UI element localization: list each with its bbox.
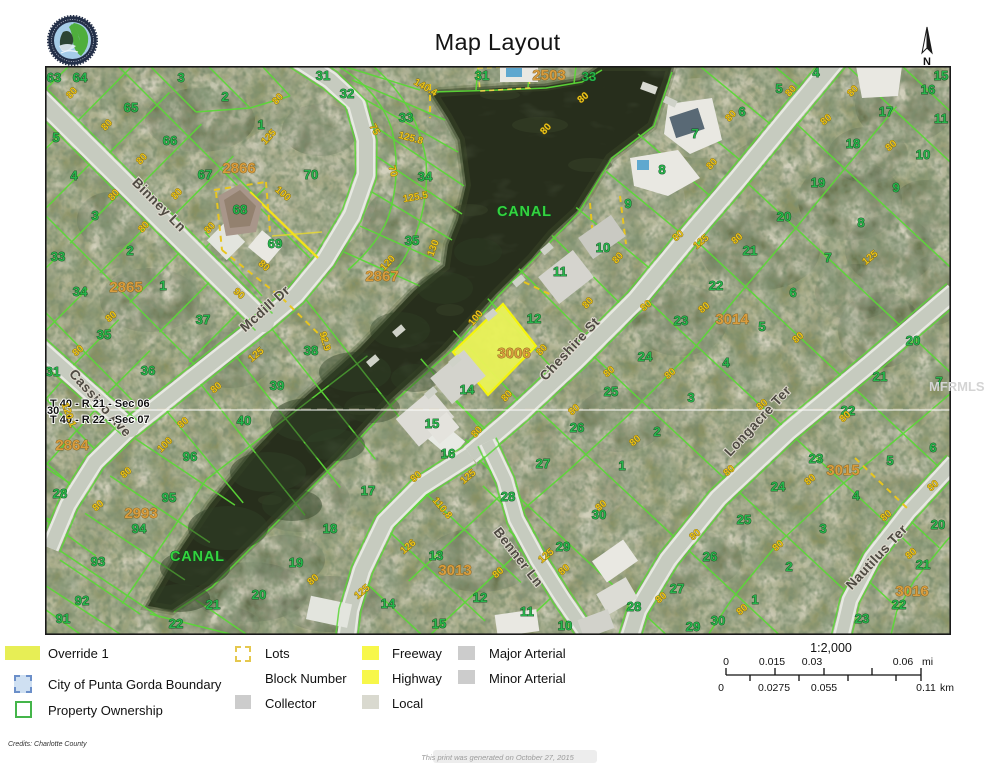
svg-text:10: 10 bbox=[558, 618, 573, 633]
svg-text:31: 31 bbox=[46, 364, 61, 379]
svg-text:29: 29 bbox=[556, 539, 571, 554]
svg-text:94: 94 bbox=[132, 521, 147, 536]
svg-text:0.0275: 0.0275 bbox=[758, 682, 790, 694]
svg-text:3: 3 bbox=[177, 70, 184, 85]
svg-text:2864: 2864 bbox=[55, 437, 89, 454]
svg-text:70: 70 bbox=[304, 167, 319, 182]
svg-text:23: 23 bbox=[809, 451, 824, 466]
svg-text:2: 2 bbox=[653, 424, 660, 439]
svg-text:2866: 2866 bbox=[222, 160, 255, 177]
svg-text:29: 29 bbox=[686, 619, 701, 634]
svg-text:3016: 3016 bbox=[895, 583, 928, 600]
svg-text:67: 67 bbox=[198, 167, 213, 182]
svg-text:1: 1 bbox=[257, 117, 264, 132]
svg-text:2: 2 bbox=[126, 243, 133, 258]
svg-text:37: 37 bbox=[196, 312, 211, 327]
svg-text:65: 65 bbox=[124, 100, 139, 115]
svg-text:9: 9 bbox=[892, 180, 899, 195]
svg-text:14: 14 bbox=[381, 596, 396, 611]
svg-text:31: 31 bbox=[316, 68, 331, 83]
svg-text:15: 15 bbox=[425, 416, 440, 431]
svg-text:1: 1 bbox=[159, 278, 166, 293]
svg-text:96: 96 bbox=[183, 449, 198, 464]
svg-text:4: 4 bbox=[812, 66, 820, 80]
svg-text:24: 24 bbox=[771, 479, 786, 494]
svg-text:69: 69 bbox=[268, 236, 283, 251]
svg-text:93: 93 bbox=[91, 554, 106, 569]
svg-text:15: 15 bbox=[432, 616, 447, 631]
svg-text:39: 39 bbox=[270, 378, 285, 393]
svg-text:25: 25 bbox=[604, 384, 619, 399]
svg-text:30: 30 bbox=[47, 405, 59, 417]
svg-text:28: 28 bbox=[53, 486, 68, 501]
svg-text:CANAL: CANAL bbox=[170, 549, 225, 565]
svg-text:3014: 3014 bbox=[715, 311, 749, 328]
svg-text:19: 19 bbox=[811, 175, 826, 190]
svg-text:0: 0 bbox=[718, 682, 724, 694]
svg-text:10: 10 bbox=[916, 147, 931, 162]
svg-text:31: 31 bbox=[475, 68, 490, 83]
svg-text:21: 21 bbox=[206, 597, 221, 612]
svg-text:8: 8 bbox=[658, 162, 665, 177]
svg-text:0.06: 0.06 bbox=[893, 656, 914, 668]
svg-text:20: 20 bbox=[252, 587, 267, 602]
svg-text:26: 26 bbox=[570, 420, 585, 435]
svg-text:17: 17 bbox=[361, 483, 376, 498]
svg-text:22: 22 bbox=[169, 616, 184, 631]
svg-text:64: 64 bbox=[73, 70, 88, 85]
svg-text:mi: mi bbox=[922, 656, 933, 668]
svg-text:4: 4 bbox=[722, 355, 730, 370]
svg-text:20: 20 bbox=[906, 333, 921, 348]
svg-text:2865: 2865 bbox=[109, 279, 142, 296]
svg-text:0.03: 0.03 bbox=[802, 656, 823, 668]
svg-text:25: 25 bbox=[737, 512, 752, 527]
svg-text:33: 33 bbox=[582, 69, 597, 84]
svg-text:27: 27 bbox=[670, 581, 685, 596]
svg-text:11: 11 bbox=[553, 264, 567, 279]
svg-text:3013: 3013 bbox=[438, 562, 471, 579]
svg-text:12: 12 bbox=[527, 311, 542, 326]
svg-text:21: 21 bbox=[743, 243, 758, 258]
svg-text:11: 11 bbox=[934, 111, 948, 126]
svg-text:3: 3 bbox=[819, 521, 826, 536]
svg-text:11: 11 bbox=[520, 604, 534, 619]
svg-text:7: 7 bbox=[691, 126, 698, 141]
svg-text:4: 4 bbox=[852, 488, 860, 503]
svg-text:38: 38 bbox=[304, 343, 319, 358]
svg-text:1: 1 bbox=[618, 458, 625, 473]
svg-text:66: 66 bbox=[163, 133, 178, 148]
svg-text:10: 10 bbox=[596, 240, 611, 255]
svg-text:35: 35 bbox=[405, 233, 420, 248]
svg-text:23: 23 bbox=[855, 611, 870, 626]
svg-text:18: 18 bbox=[846, 136, 861, 151]
svg-text:95: 95 bbox=[162, 490, 177, 505]
svg-text:35: 35 bbox=[97, 327, 112, 342]
svg-text:19: 19 bbox=[289, 555, 304, 570]
svg-text:32: 32 bbox=[340, 86, 355, 101]
svg-text:5: 5 bbox=[886, 453, 893, 468]
svg-text:20: 20 bbox=[931, 517, 946, 532]
svg-text:2867: 2867 bbox=[365, 268, 398, 285]
svg-text:14: 14 bbox=[460, 382, 475, 397]
svg-text:1:2,000: 1:2,000 bbox=[810, 641, 852, 655]
svg-text:3: 3 bbox=[91, 208, 98, 223]
svg-text:3006: 3006 bbox=[497, 345, 530, 362]
svg-text:40: 40 bbox=[237, 413, 252, 428]
svg-text:16: 16 bbox=[441, 446, 456, 461]
svg-text:13: 13 bbox=[429, 548, 444, 563]
svg-text:22: 22 bbox=[709, 278, 724, 293]
svg-text:28: 28 bbox=[627, 599, 642, 614]
svg-text:68: 68 bbox=[233, 202, 248, 217]
svg-text:0.055: 0.055 bbox=[811, 682, 837, 694]
svg-text:1: 1 bbox=[751, 592, 758, 607]
svg-text:16: 16 bbox=[921, 82, 936, 97]
svg-text:24: 24 bbox=[638, 349, 653, 364]
svg-text:91: 91 bbox=[56, 611, 71, 626]
svg-text:3: 3 bbox=[687, 390, 694, 405]
svg-text:7: 7 bbox=[824, 250, 831, 265]
svg-text:63: 63 bbox=[47, 70, 62, 85]
svg-text:20: 20 bbox=[777, 209, 792, 224]
svg-text:2993: 2993 bbox=[124, 505, 157, 522]
svg-text:km: km bbox=[940, 682, 954, 694]
svg-text:21: 21 bbox=[873, 369, 888, 384]
svg-text:21: 21 bbox=[916, 557, 931, 572]
svg-text:CANAL: CANAL bbox=[497, 204, 552, 220]
svg-text:6: 6 bbox=[929, 440, 936, 455]
svg-text:5: 5 bbox=[758, 319, 765, 334]
svg-text:34: 34 bbox=[418, 169, 433, 184]
svg-text:0.015: 0.015 bbox=[759, 656, 785, 668]
svg-text:5: 5 bbox=[52, 130, 59, 145]
svg-text:8: 8 bbox=[857, 215, 864, 230]
svg-text:0.11: 0.11 bbox=[916, 682, 936, 694]
svg-text:23: 23 bbox=[674, 313, 689, 328]
svg-text:3015: 3015 bbox=[826, 462, 859, 479]
svg-text:5: 5 bbox=[775, 81, 782, 96]
svg-text:9: 9 bbox=[624, 196, 631, 211]
svg-text:27: 27 bbox=[536, 456, 551, 471]
svg-text:15: 15 bbox=[934, 68, 949, 83]
svg-text:4: 4 bbox=[70, 168, 78, 183]
svg-text:6: 6 bbox=[789, 285, 796, 300]
svg-text:33: 33 bbox=[399, 110, 414, 125]
svg-text:2503: 2503 bbox=[532, 67, 565, 84]
svg-text:6: 6 bbox=[738, 104, 745, 119]
svg-text:0: 0 bbox=[723, 656, 729, 668]
svg-text:36: 36 bbox=[141, 363, 156, 378]
svg-text:2: 2 bbox=[221, 89, 228, 104]
svg-text:92: 92 bbox=[75, 593, 90, 608]
svg-text:2: 2 bbox=[785, 559, 792, 574]
svg-text:30: 30 bbox=[711, 613, 726, 628]
svg-text:18: 18 bbox=[323, 521, 338, 536]
svg-text:26: 26 bbox=[703, 549, 718, 564]
svg-text:17: 17 bbox=[879, 104, 894, 119]
svg-text:33: 33 bbox=[51, 249, 66, 264]
svg-text:28: 28 bbox=[501, 489, 516, 504]
svg-text:12: 12 bbox=[473, 590, 488, 605]
svg-text:34: 34 bbox=[73, 284, 88, 299]
